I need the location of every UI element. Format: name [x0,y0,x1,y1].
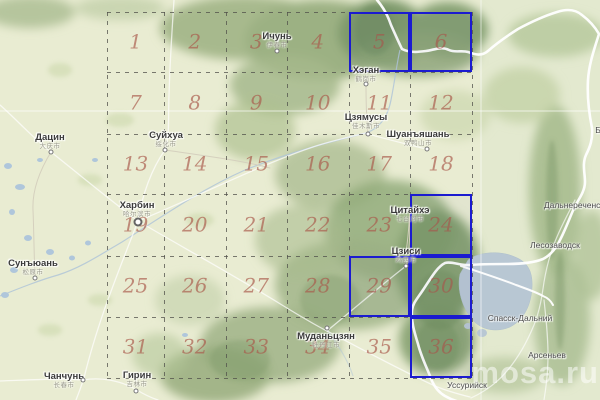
map-terrain-layer [0,0,600,400]
highlighted-cell [349,12,411,73]
highlighted-cell [349,256,411,317]
map-canvas[interactable]: 1234567891011121314151617181920212223242… [0,0,600,400]
highlighted-cell [410,12,472,73]
highlighted-cell [410,317,472,378]
highlighted-cell [410,256,472,317]
highlighted-cell [410,194,472,256]
